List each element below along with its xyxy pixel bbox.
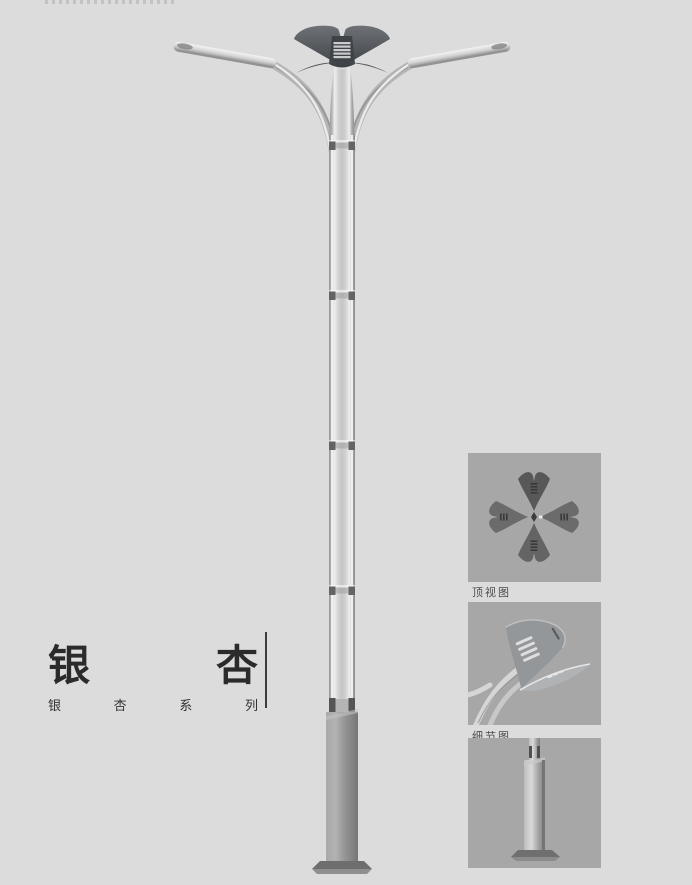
- lamp-arm-left: [271, 62, 336, 152]
- product-title: 银 杏: [48, 645, 258, 687]
- base-plate: [312, 861, 372, 874]
- series-subtitle: 银 杏 系 列: [48, 699, 258, 712]
- pole-joint-2: [329, 290, 355, 300]
- lamp-fixture-left: [173, 41, 277, 69]
- ginkgo-lamp-head: [294, 24, 390, 73]
- product-title-block: 银 杏 银 杏 系 列: [48, 645, 258, 712]
- base-column: [326, 709, 358, 864]
- thumbnail-top-view: [468, 453, 601, 582]
- thumbnail-detail-view: [468, 602, 601, 725]
- head-stem: [330, 66, 355, 140]
- top-view-highlight-dot: [539, 516, 543, 519]
- base-view-image: [468, 738, 601, 868]
- series-char-3: 系: [179, 699, 192, 712]
- catalog-page: 银 杏 银 杏 系 列: [0, 0, 692, 885]
- top-view-label: 顶视图: [472, 584, 511, 600]
- pole: [329, 135, 355, 715]
- thumbnail-base-view: [468, 738, 601, 868]
- title-char-1: 银: [48, 645, 90, 687]
- detail-view-image: [468, 602, 601, 725]
- title-divider-line: [265, 632, 267, 708]
- title-char-2: 杏: [216, 645, 258, 687]
- series-char-4: 列: [245, 699, 258, 712]
- series-char-1: 银: [48, 699, 61, 712]
- series-char-2: 杏: [114, 699, 127, 712]
- pole-joint-4: [329, 585, 355, 595]
- pole-joint-3: [329, 440, 355, 450]
- pole-joint-1: [329, 140, 355, 150]
- lamp-arm-right: [348, 62, 413, 152]
- lamp-fixture-right: [407, 41, 511, 69]
- top-view-center-hub: [531, 512, 537, 522]
- top-view-image: [468, 453, 601, 582]
